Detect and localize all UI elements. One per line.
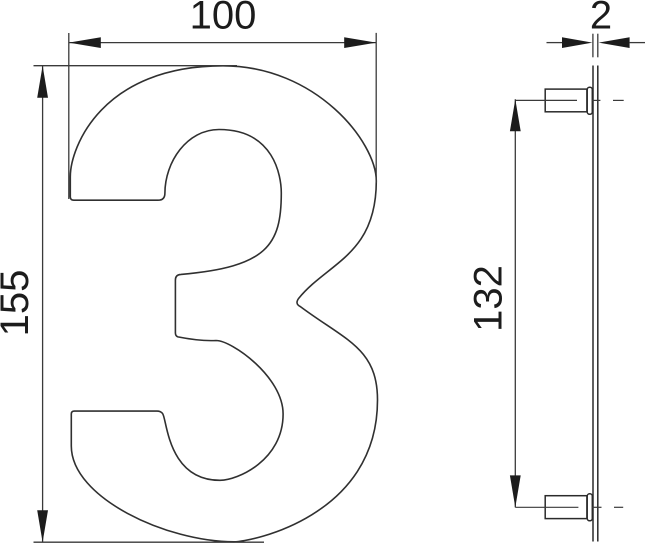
svg-text:155: 155 <box>0 270 37 337</box>
svg-text:2: 2 <box>590 0 612 37</box>
svg-text:100: 100 <box>190 0 257 37</box>
svg-text:132: 132 <box>466 265 510 332</box>
